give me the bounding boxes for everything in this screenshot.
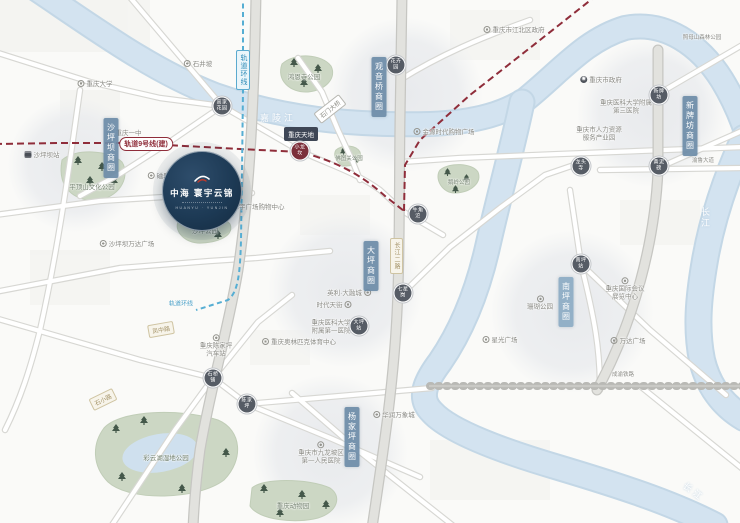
poi-dot-icon xyxy=(262,338,269,345)
government-icon: ★ xyxy=(580,76,587,83)
district-badge-shapingba: 沙坪坝商圈 xyxy=(104,118,119,178)
poi-dot-icon xyxy=(148,172,155,179)
park-label-caiyunhu: 彩云湖湿地公园 xyxy=(143,452,189,462)
poi-dot-icon xyxy=(100,240,107,247)
park-label-zoo: 重庆动物园 xyxy=(277,500,310,510)
road-badge-changjiang-2nd-rd: 长江二路 xyxy=(390,238,403,274)
station-chenjiaping: 陈家坪 xyxy=(238,395,257,414)
station-qixinggang: 七星岗 xyxy=(394,284,413,303)
project-logo-icon xyxy=(193,172,211,184)
poi-dot-icon xyxy=(213,334,220,341)
project-marker: 中海 寰宇云锦 HUANYU · YUNJIN xyxy=(162,151,242,231)
poi-dot-icon xyxy=(622,277,629,284)
road-label-yulu-avenue: 渝鲁大道 xyxy=(692,156,714,164)
river-label-jialingjiang: 嘉陵江 xyxy=(260,111,296,124)
poi-city-government: ★重庆市政府 xyxy=(580,74,622,84)
poi-medical-univ-hospital1: 重庆医科大学附属第一医院 xyxy=(312,319,351,334)
park-label-eling: 鹅岭公园 xyxy=(448,178,470,186)
poi-shijingpo: 石井坡 xyxy=(184,58,213,68)
district-badge-daping: 大坪商圈 xyxy=(364,241,379,291)
loop-line-end-label: 轨道环线 xyxy=(169,299,193,308)
poi-jinyuan-mall: 金源时代购物广场 xyxy=(414,126,475,136)
project-divider xyxy=(182,202,222,203)
poi-dot-icon xyxy=(483,336,490,343)
train-station-icon xyxy=(25,151,32,158)
poi-olympic-sports-center: 重庆奥林匹克体育中心 xyxy=(262,336,336,346)
poi-dot-icon xyxy=(345,301,352,308)
poi-intl-expo-center: 重庆国际会议展览中心 xyxy=(606,277,645,300)
station-gaojiahuayuan: 高家花园 xyxy=(213,97,232,116)
station-huahuiyuan: 花卉园 xyxy=(387,56,406,75)
poi-zhaomushan-park: 照母山森林公园 xyxy=(683,33,722,41)
park-label-futuguan: 佛图关公园 xyxy=(335,154,363,162)
location-map[interactable]: 嘉陵江 长江 长江 轨道9号线(建) 轨道环线 轨道环线 沙坪坝商圈 观音桥商圈… xyxy=(0,0,740,523)
poi-medical-univ-hospital3: 重庆医科大学附属第三医院 xyxy=(600,99,652,114)
poi-dot-icon xyxy=(537,295,544,302)
poi-dot-icon xyxy=(184,60,191,67)
station-daping: 大坪站 xyxy=(350,317,369,336)
station-shiqiaopu: 石桥铺 xyxy=(204,369,223,388)
poi-dot-icon xyxy=(318,441,325,448)
park-label-pingdingshan: 平顶山文化公园 xyxy=(69,181,115,191)
poi-shapingba-railway-station: 沙坪坝站 xyxy=(25,149,60,159)
district-badge-yangjiaping: 杨家坪商圈 xyxy=(345,407,360,467)
poi-times-paradise-walk: 时代天街 xyxy=(317,299,352,309)
poi-jiangbei-district-gov: 重庆市江北区政府 xyxy=(484,24,545,34)
poi-dot-icon xyxy=(78,80,85,87)
poi-dot-icon xyxy=(484,26,491,33)
station-nanping: 南坪站 xyxy=(572,255,591,274)
district-badge-xinpaifang: 新牌坊商圈 xyxy=(683,96,698,156)
poi-mixc-mall: 华润万象城 xyxy=(373,409,415,419)
poi-chongqing-university: 重庆大学 xyxy=(78,78,113,88)
station-niujiaotuo: 牛角沱 xyxy=(409,205,428,224)
poi-dot-icon xyxy=(414,128,421,135)
poi-chenjiaping-bus-station: 重庆陈家坪汽车站 xyxy=(200,334,233,357)
poi-chongqing-tiandi-badge: 重庆天地 xyxy=(284,127,318,141)
label-chengyu-railway: 成渝铁路 xyxy=(612,370,634,378)
poi-dot-icon xyxy=(611,337,618,344)
station-huangnibang: 黄泥磅 xyxy=(650,157,669,176)
poi-dot-icon xyxy=(373,411,380,418)
project-tagline: HUANYU · YUNJIN xyxy=(176,206,229,210)
poi-wanda-plaza-nanping: 万达广场 xyxy=(611,335,646,345)
line9-badge: 轨道9号线(建) xyxy=(119,137,173,151)
poi-xingguang-plaza: 星光广场 xyxy=(483,334,518,344)
station-longtousi: 龙头寺 xyxy=(572,157,591,176)
river-label-changjiang-right: 长江 xyxy=(699,207,712,229)
loop-line-badge: 轨道环线 xyxy=(236,50,250,90)
district-badge-guanyinqiao: 观音桥商圈 xyxy=(372,57,387,117)
poi-shanhu-park: 珊瑚公园 xyxy=(527,295,553,310)
station-xiaolongkan: 小龙坎 xyxy=(291,142,310,161)
station-xinpaifang: 新牌坊 xyxy=(650,86,669,105)
poi-hr-industry-park: 重庆市人力资源服务产业园 xyxy=(576,126,622,141)
poi-jiulongpo-hospital1: 重庆市九龙坡区第一人民医院 xyxy=(298,441,344,464)
project-name: 中海 寰宇云锦 xyxy=(170,187,234,199)
park-label-hongensi: 鸿恩寺公园 xyxy=(288,71,321,81)
district-badge-nanping: 南坪商圈 xyxy=(559,277,574,327)
poi-shapingba-wanda: 沙坪坝万达广场 xyxy=(100,238,155,248)
